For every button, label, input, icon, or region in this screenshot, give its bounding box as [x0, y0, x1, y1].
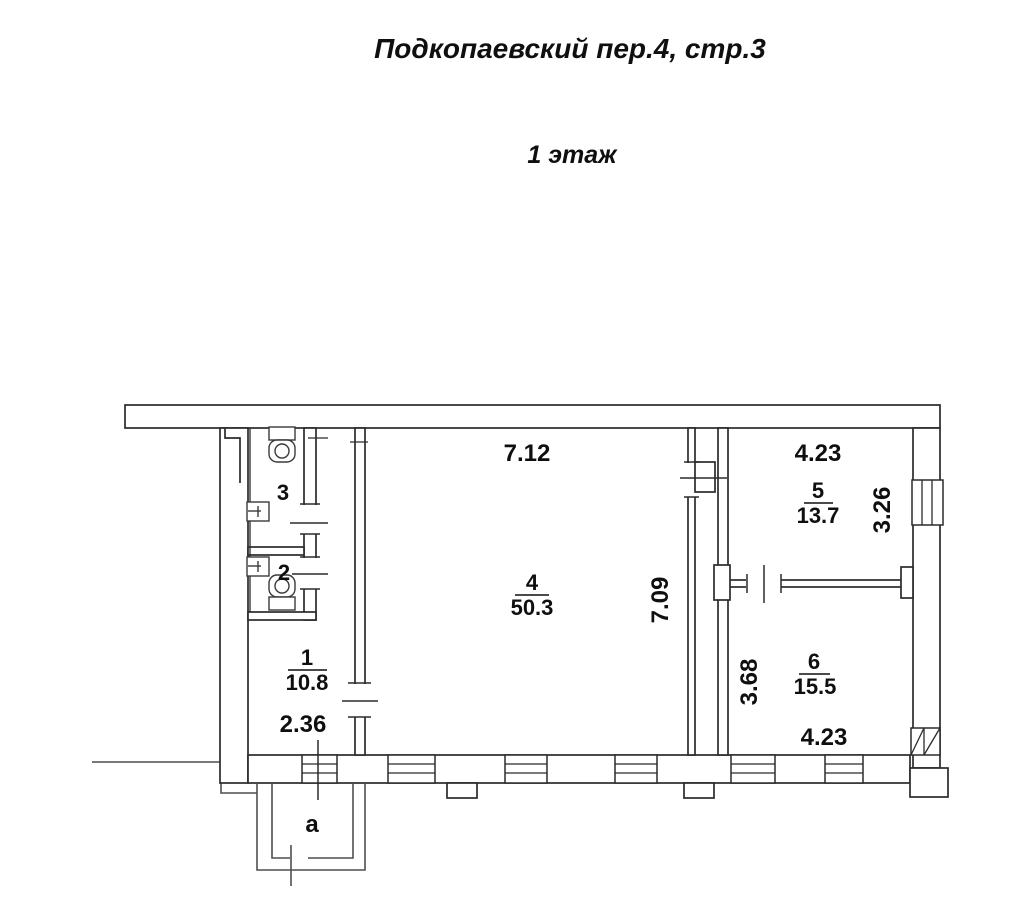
door-room3 [290, 504, 328, 534]
wall-top [125, 405, 940, 428]
corner-block-bottom-right [910, 768, 948, 797]
annex-label: а [305, 811, 319, 838]
dim-room6-width: 4.23 [801, 724, 848, 751]
floor-label: 1 этаж [527, 141, 618, 169]
window-symbol [388, 755, 435, 783]
windows [302, 480, 943, 800]
hatched-pier [911, 728, 940, 755]
toilet-icon [269, 427, 295, 462]
wall-right [913, 428, 940, 768]
door-room5-room6 [746, 565, 781, 603]
dim-room4-width: 7.12 [504, 440, 551, 467]
door-room1-room4 [342, 683, 378, 717]
wall-left [220, 428, 248, 783]
sink-icon [247, 502, 269, 521]
wall-room3-room2 [248, 547, 304, 555]
room2-number-label: 2 [278, 560, 290, 585]
room5-area-label: 13.7 [797, 503, 840, 528]
window-symbol [615, 755, 657, 783]
dimension-labels: 7.12 7.09 4.23 3.26 3.68 4.23 2.36 [280, 440, 896, 751]
floor-plan-page: Подкопаевский пер.4, стр.3 1 этаж [0, 0, 1024, 910]
room6-number-label: 6 [808, 649, 820, 674]
window-symbol-east [912, 480, 943, 525]
room5-number-label: 5 [812, 478, 824, 503]
door-room2 [292, 557, 328, 589]
entry-room1-annex [302, 740, 337, 800]
wall-sanblock-south [248, 612, 316, 620]
dim-room5-depth: 3.26 [869, 487, 896, 534]
dim-room6-depth: 3.68 [736, 659, 763, 706]
wall-bottom [248, 755, 910, 783]
window-symbol [731, 755, 775, 783]
pier-partition-east [901, 567, 913, 598]
window-symbol [825, 755, 863, 783]
dim-room5-width: 4.23 [795, 440, 842, 467]
room6-area-label: 15.5 [794, 674, 837, 699]
room4-number-label: 4 [526, 570, 539, 595]
room1-number-label: 1 [301, 645, 313, 670]
page-title: Подкопаевский пер.4, стр.3 [374, 33, 766, 64]
window-symbol [505, 755, 547, 783]
dim-room4-depth: 7.09 [647, 577, 674, 624]
room3-number-label: 3 [277, 480, 289, 505]
pier-partition-west [714, 565, 730, 600]
floor-plan-drawing: Подкопаевский пер.4, стр.3 1 этаж [0, 0, 1024, 910]
room1-area-label: 10.8 [286, 670, 329, 695]
sink-icon [247, 557, 269, 576]
facade-pilaster-1 [447, 783, 477, 798]
room4-area-label: 50.3 [511, 595, 554, 620]
dim-room1-width: 2.36 [280, 711, 327, 738]
facade-pilaster-2 [684, 783, 714, 798]
